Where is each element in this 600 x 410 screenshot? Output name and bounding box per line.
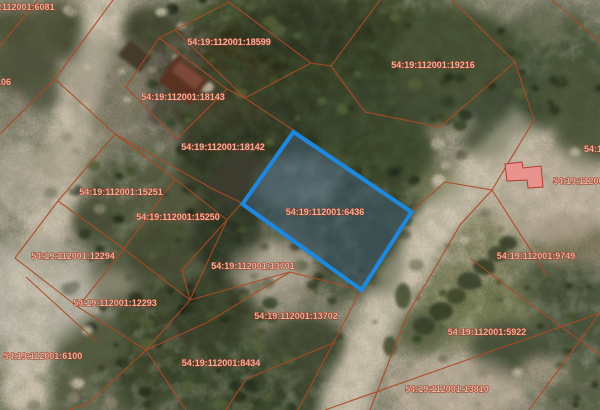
svg-text:54:19:112001:9749: 54:19:112001:9749 [497,251,576,261]
svg-text:54:19:112001:5922: 54:19:112001:5922 [448,327,527,337]
svg-text:54:19:112001:18: 54:19:112001:18 [553,176,600,186]
svg-text:54:19:112001:8434: 54:19:112001:8434 [182,358,261,368]
svg-text:54:19:112001:18142: 54:19:112001:18142 [181,142,265,152]
svg-text:54:19:112001:6106: 54:19:112001:6106 [0,77,11,87]
svg-text:54:19:112001:15250: 54:19:112001:15250 [136,212,220,222]
svg-text:54:19:112001:6436: 54:19:112001:6436 [286,207,365,217]
svg-text:54:19:112001:12293: 54:19:112001:12293 [73,298,157,308]
svg-text:54:19:112001:18: 54:19:112001:18 [584,144,600,154]
svg-text:54:19:112001:18143: 54:19:112001:18143 [141,92,225,102]
svg-text:54:19:112001:13810: 54:19:112001:13810 [405,384,489,394]
svg-text:54:19:112001:12294: 54:19:112001:12294 [31,251,115,261]
svg-text:54:19:112001:19216: 54:19:112001:19216 [391,60,475,70]
svg-text:54:19:112001:13701: 54:19:112001:13701 [211,261,295,271]
svg-text:54:19:112001:6081: 54:19:112001:6081 [0,2,55,12]
svg-text:54:19:112001:6100: 54:19:112001:6100 [4,351,83,361]
svg-text:54:19:112001:13702: 54:19:112001:13702 [254,311,338,321]
svg-text:54:19:112001:15251: 54:19:112001:15251 [79,187,163,197]
svg-text:54:19:112001:18599: 54:19:112001:18599 [187,37,271,47]
